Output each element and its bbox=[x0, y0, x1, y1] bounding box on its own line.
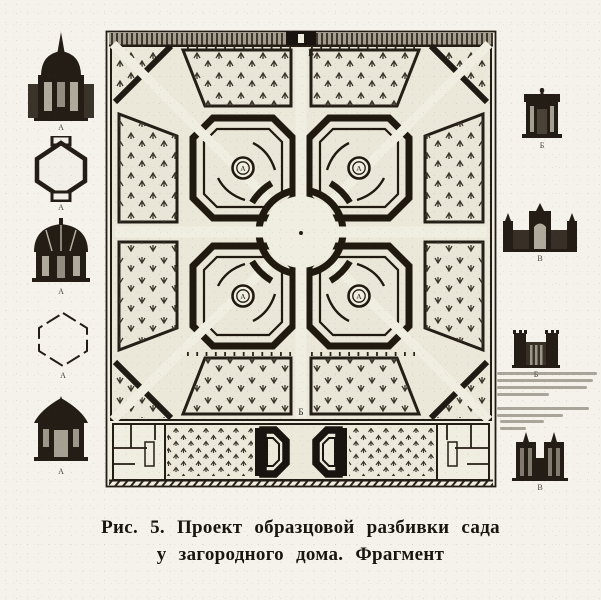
left-figure-label: А bbox=[30, 287, 92, 296]
garden-plan: А А А А В Б bbox=[105, 30, 497, 488]
left-figure-hexagon-outline: А bbox=[36, 310, 90, 380]
small-pavilion-icon bbox=[30, 396, 92, 466]
medallion-letter: А bbox=[356, 164, 362, 173]
left-figure-label: А bbox=[36, 371, 90, 380]
domed-pavilion-icon bbox=[30, 218, 92, 286]
left-figure-small-pavilion: А bbox=[30, 396, 92, 476]
medallion-letter: А bbox=[356, 292, 362, 301]
fence-with-towers-icon bbox=[512, 327, 560, 369]
right-figure-garden-gate: В bbox=[503, 203, 577, 263]
caption-line-2: у загородного дома. Фрагмент bbox=[0, 541, 601, 568]
bottom-ground-band bbox=[109, 481, 493, 487]
forecourt-orchard-left bbox=[167, 428, 253, 476]
illegible-annotation-lines bbox=[497, 372, 599, 417]
left-figure-label: А bbox=[30, 467, 92, 476]
right-figure-double-tower-gate: В bbox=[512, 432, 568, 492]
right-figure-label: В bbox=[503, 254, 577, 263]
right-figure-label: В bbox=[512, 483, 568, 492]
square-pavilion-icon bbox=[520, 88, 564, 140]
right-figure-square-pavilion: Б bbox=[520, 88, 564, 150]
garden-plan-drawing: А А А А В Б bbox=[105, 30, 497, 488]
bottom-entrance-letter: Б bbox=[298, 407, 303, 417]
left-figure-domed-pavilion: А bbox=[30, 218, 92, 296]
left-figure-hexagon-plan: А bbox=[32, 136, 90, 212]
garden-gate-icon bbox=[503, 203, 577, 253]
left-figure-label: А bbox=[28, 123, 94, 132]
forecourt-strip bbox=[113, 424, 489, 480]
forecourt-building-right bbox=[437, 424, 489, 480]
double-tower-gate-icon bbox=[512, 432, 568, 482]
figure-caption: Рис. 5. Проект образцовой разбивки сада … bbox=[0, 514, 601, 568]
forecourt-orchard-right bbox=[349, 428, 435, 476]
pavilion-spire-icon bbox=[28, 32, 94, 122]
top-wall bbox=[109, 31, 493, 47]
medallion-letter: А bbox=[240, 292, 246, 301]
top-entrance-letter: В bbox=[308, 48, 314, 58]
illegible-note-lines bbox=[500, 420, 546, 430]
right-figure-label: Б bbox=[520, 141, 564, 150]
left-figure-label: А bbox=[32, 203, 90, 212]
forecourt-building-left bbox=[113, 424, 165, 480]
left-figure-pavilion-spire: А bbox=[28, 32, 94, 132]
hexagon-outline-icon bbox=[36, 310, 90, 370]
medallion-letter: А bbox=[240, 164, 246, 173]
caption-line-1: Рис. 5. Проект образцовой разбивки сада bbox=[0, 514, 601, 541]
hexagon-plan-icon bbox=[32, 136, 90, 202]
